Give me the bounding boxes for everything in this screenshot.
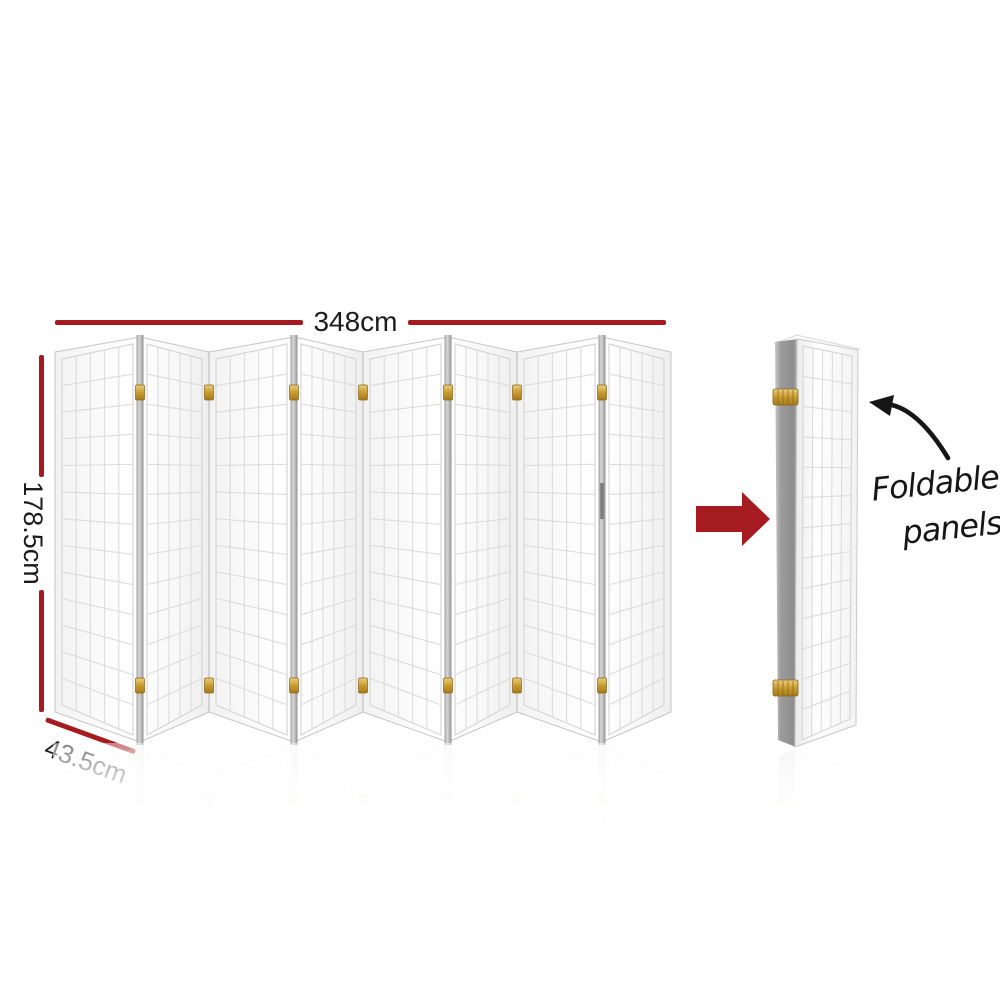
curved-arrow-icon — [862, 392, 957, 467]
brass-hinge-icon — [444, 385, 453, 400]
brass-hinge-icon — [136, 385, 145, 400]
product-dimension-diagram: 348cm 178.5cm 43.5cm Foldable panels — [0, 0, 1000, 1000]
height-dimension-label: 178.5cm — [18, 474, 48, 592]
brass-hinge-icon — [205, 678, 214, 693]
brass-hinge-icon — [598, 385, 607, 400]
brass-hinge-icon — [205, 385, 214, 400]
divider-panel — [448, 337, 517, 742]
room-divider-front-view — [53, 333, 673, 893]
brass-hinge-icon — [773, 680, 798, 696]
divider-panel — [209, 337, 294, 742]
brass-hinge-icon — [444, 678, 453, 693]
divider-panel — [140, 337, 209, 742]
height-dimension-line-bottom — [39, 590, 44, 712]
right-arrow-icon — [696, 490, 772, 550]
annotation-foldable-panels: Foldable panels — [841, 451, 1000, 562]
brass-hinge-icon — [513, 678, 522, 693]
height-dimension-line-top — [39, 355, 44, 477]
width-dimension-line-left — [55, 320, 303, 325]
brass-hinge-icon — [359, 678, 368, 693]
brass-hinge-icon — [290, 678, 299, 693]
divider-panel — [363, 337, 448, 742]
brass-hinge-icon — [136, 678, 145, 693]
divider-panel — [294, 337, 363, 742]
divider-panel — [517, 337, 602, 742]
width-dimension-line-right — [408, 320, 666, 325]
brass-hinge-icon — [598, 678, 607, 693]
brass-hinge-icon — [773, 389, 798, 405]
divider-panel — [55, 337, 140, 742]
divider-panel — [602, 337, 671, 742]
brass-hinge-icon — [290, 385, 299, 400]
brass-hinge-icon — [359, 385, 368, 400]
folded-panel-stack-side-view — [762, 328, 872, 868]
brass-hinge-icon — [513, 385, 522, 400]
